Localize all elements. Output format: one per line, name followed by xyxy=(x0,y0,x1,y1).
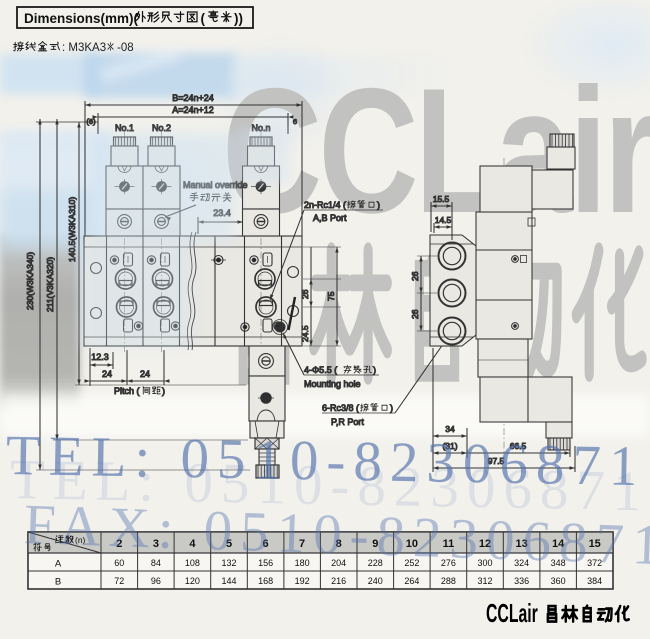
svg-text:264: 264 xyxy=(404,576,419,586)
svg-text:216: 216 xyxy=(331,576,346,586)
svg-text:96: 96 xyxy=(151,576,161,586)
svg-text:B: B xyxy=(55,577,61,588)
svg-text:192: 192 xyxy=(295,576,310,586)
svg-text:144: 144 xyxy=(221,576,236,586)
svg-text:384: 384 xyxy=(587,576,602,586)
svg-text:312: 312 xyxy=(477,576,492,586)
svg-text:336: 336 xyxy=(514,576,529,586)
svg-text:240: 240 xyxy=(368,576,383,586)
svg-text:120: 120 xyxy=(185,576,200,586)
svg-text:72: 72 xyxy=(114,576,124,586)
svg-text:288: 288 xyxy=(441,576,456,586)
svg-text:A: A xyxy=(55,559,62,570)
svg-text:360: 360 xyxy=(551,576,566,586)
svg-text:168: 168 xyxy=(258,576,273,586)
